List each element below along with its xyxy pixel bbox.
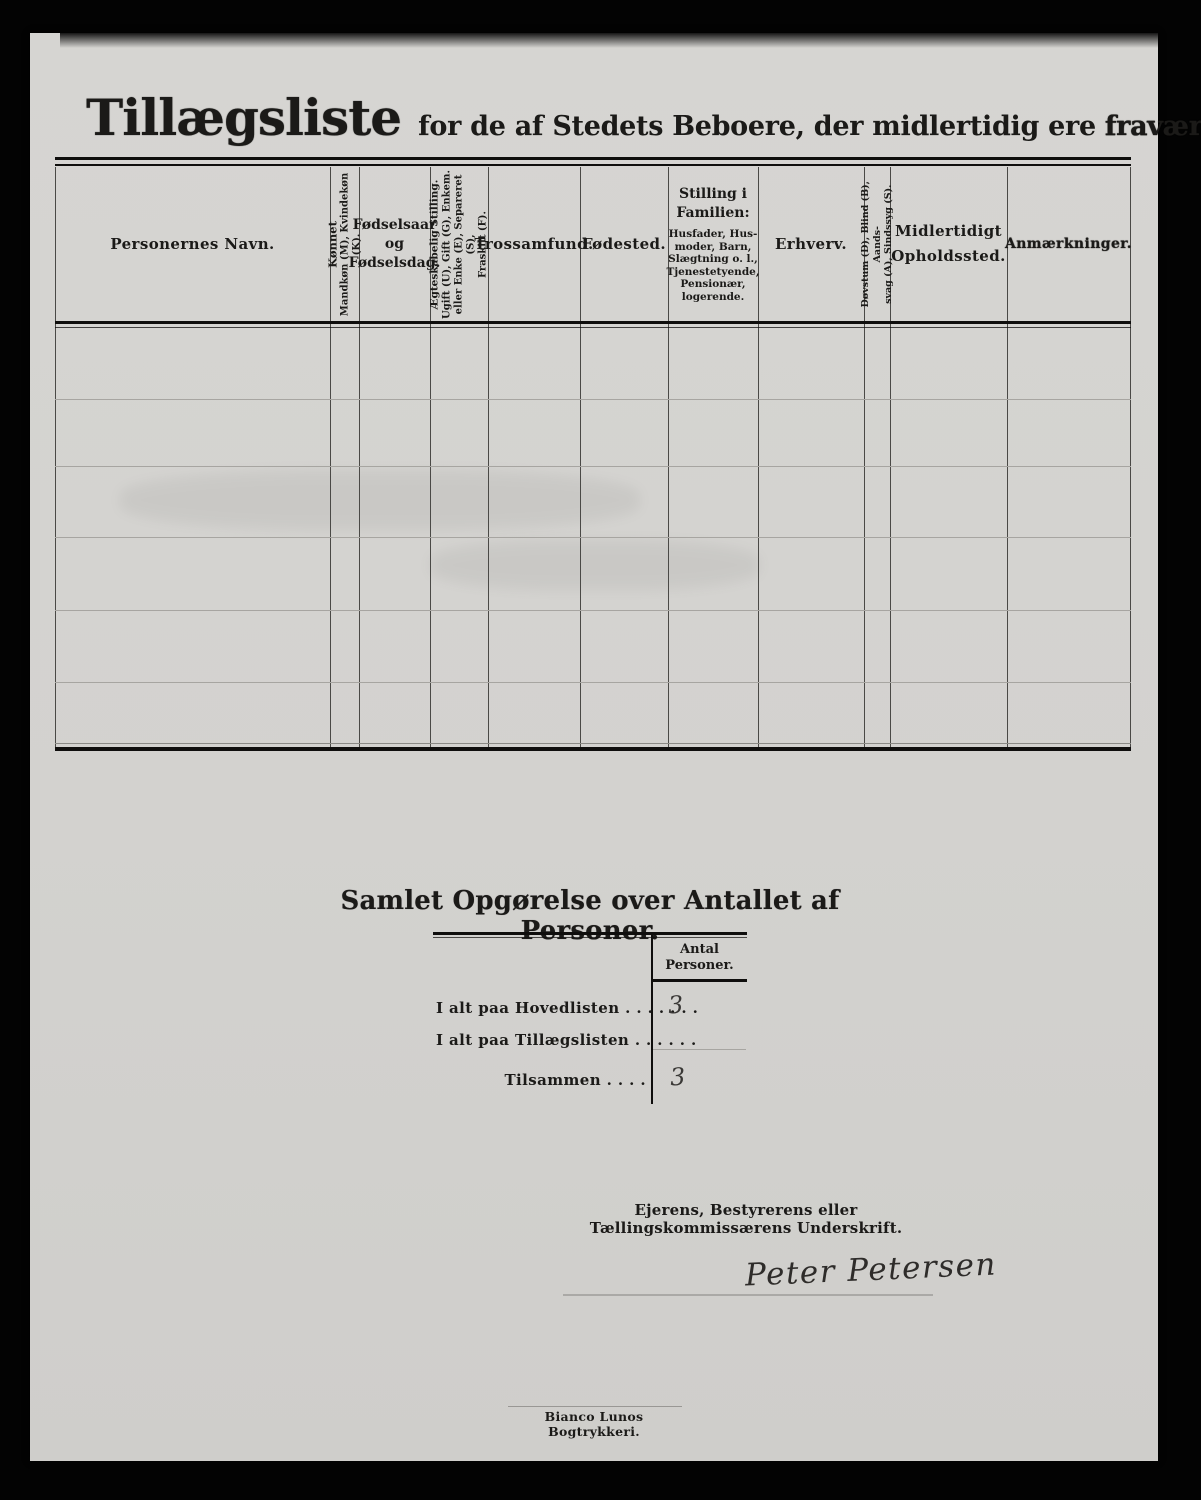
table-row	[55, 399, 1131, 467]
page-title-subtitle-emphasis: fraværende.	[1105, 111, 1201, 142]
column-header-sublabel: logerende.	[682, 291, 745, 304]
table-row	[55, 466, 1131, 538]
column-header-sublabel: moder, Barn,	[675, 241, 752, 254]
column-header-fodselsaar: Fødselsaar og Fødselsdag.	[359, 167, 430, 321]
table-row	[55, 610, 1131, 683]
column-header-label: Døvstum (D), Blind (B), Aands-	[860, 168, 883, 320]
page-title-main: Tillægsliste	[86, 88, 401, 147]
table-top-rule-thin	[55, 164, 1131, 166]
table-bottom-rule-thick	[55, 747, 1131, 751]
column-header-label: Anmærkninger.	[1005, 235, 1132, 254]
signature-line	[563, 1294, 933, 1296]
page-title-subtitle: for de af Stedets Beboere, der midlertid…	[418, 111, 1096, 142]
table-row	[55, 329, 1131, 400]
column-header-midlertidigt-opholdssted: Midlertidigt Opholdssted.	[890, 167, 1007, 321]
summary-value-tilsammen: 3	[669, 1063, 686, 1092]
column-header-label: Fødselsdag.	[349, 254, 441, 273]
summary-top-rule-thin	[433, 937, 747, 938]
column-header-sublabel: Husfader, Hus-	[669, 228, 758, 241]
summary-subtotal-rule	[653, 1049, 746, 1050]
summary-row-label-tilsammen: Tilsammen . . . .	[430, 1071, 646, 1089]
table-row	[55, 682, 1131, 743]
column-header-erhverv: Erhverv.	[758, 167, 864, 321]
summary-value-hovedlisten: 3	[667, 991, 684, 1020]
column-header-label: Kønnet	[326, 168, 339, 320]
column-header-sublabel: Tjenestetyende,	[667, 266, 760, 279]
summary-header-underline	[653, 979, 747, 982]
column-header-label: Familien:	[676, 204, 749, 223]
printer-rule	[508, 1406, 682, 1407]
column-header-label: Opholdssted.	[891, 247, 1006, 266]
table-row	[55, 537, 1131, 611]
page-title: Tillægsliste for de af Stedets Beboere, …	[86, 88, 1126, 147]
column-header-label: Stilling i	[679, 185, 747, 204]
column-header-stilling-i-familien: Stilling i Familien: Husfader, Hus- mode…	[668, 167, 758, 321]
summary-value-column-header: Antal Personer.	[652, 942, 747, 974]
header-bottom-rule-thick	[55, 321, 1131, 324]
summary-value-header-line: Personer.	[652, 958, 747, 974]
scanned-census-page: Tillægsliste for de af Stedets Beboere, …	[0, 0, 1201, 1500]
column-header-label: Personernes Navn.	[110, 235, 274, 254]
printer-imprint: Bianco Lunos Bogtrykkeri.	[498, 1409, 690, 1439]
summary-row-label-hovedlisten: I alt paa Hovedlisten . . . . . . .	[436, 999, 698, 1017]
scan-top-shadow	[60, 33, 1158, 48]
column-header-personernes-navn: Personernes Navn.	[55, 167, 330, 321]
column-header-label: Trossamfund.	[474, 235, 593, 254]
summary-value-header-line: Antal	[652, 942, 747, 958]
column-header-label: og	[385, 235, 404, 254]
column-header-fodested: Fødested.	[580, 167, 668, 321]
column-header-dovstum: Døvstum (D), Blind (B), Aands- svag (A),…	[864, 167, 890, 321]
column-header-label: Fødselsaar	[353, 216, 437, 235]
summary-top-rule-thick	[433, 932, 747, 935]
table-top-rule-thick	[55, 157, 1131, 160]
signature-caption: Ejerens, Bestyrerens eller Tællingskommi…	[550, 1201, 942, 1237]
column-header-anmaerkninger: Anmærkninger.	[1007, 167, 1130, 321]
column-header-sublabel: Slægtning o. l.,	[668, 253, 758, 266]
column-header-label: Midlertidigt	[895, 222, 1002, 241]
column-header-label: Ægteskabelig Stilling.	[429, 168, 442, 320]
summary-row-label-tillaegslisten: I alt paa Tillægslisten . . . . . .	[436, 1031, 697, 1049]
column-header-konnet: Kønnet Mandkøn (M), Kvindekøn (K).	[330, 167, 359, 321]
column-header-sublabel: Pensionær,	[680, 278, 745, 291]
column-header-sublabel: Ugift (U), Gift (G), Enkem.	[442, 168, 454, 320]
header-bottom-rule-thin	[55, 327, 1131, 328]
table-bottom-rule-thin	[55, 743, 1131, 744]
column-header-label: Erhverv.	[775, 235, 847, 254]
column-header-label: Fødested.	[582, 235, 666, 254]
column-header-trossamfund: Trossamfund.	[488, 167, 580, 321]
